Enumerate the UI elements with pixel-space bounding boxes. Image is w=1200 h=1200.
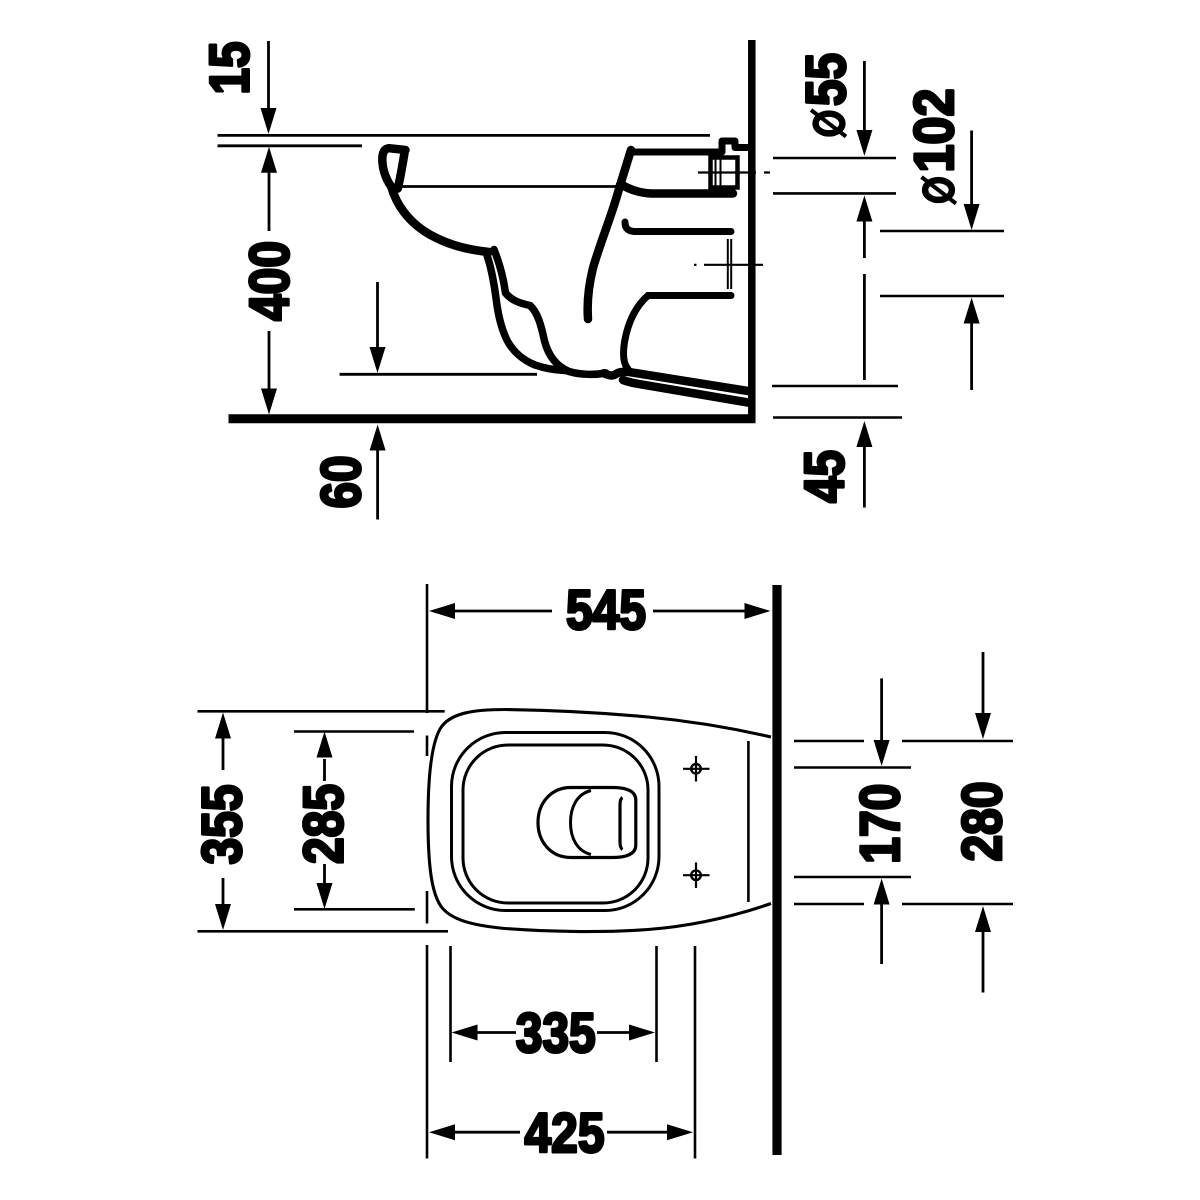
svg-text:355: 355: [190, 785, 253, 865]
svg-text:545: 545: [566, 578, 646, 641]
svg-text:335: 335: [516, 1001, 596, 1064]
svg-text:170: 170: [848, 784, 911, 864]
svg-text:55: 55: [794, 53, 857, 106]
svg-text:102: 102: [902, 89, 965, 173]
svg-text:400: 400: [238, 241, 301, 321]
svg-text:280: 280: [950, 782, 1013, 862]
svg-text:425: 425: [525, 1101, 605, 1164]
svg-text:60: 60: [309, 456, 372, 509]
svg-text:285: 285: [292, 784, 355, 864]
svg-text:15: 15: [198, 42, 261, 95]
svg-text:45: 45: [793, 450, 856, 503]
